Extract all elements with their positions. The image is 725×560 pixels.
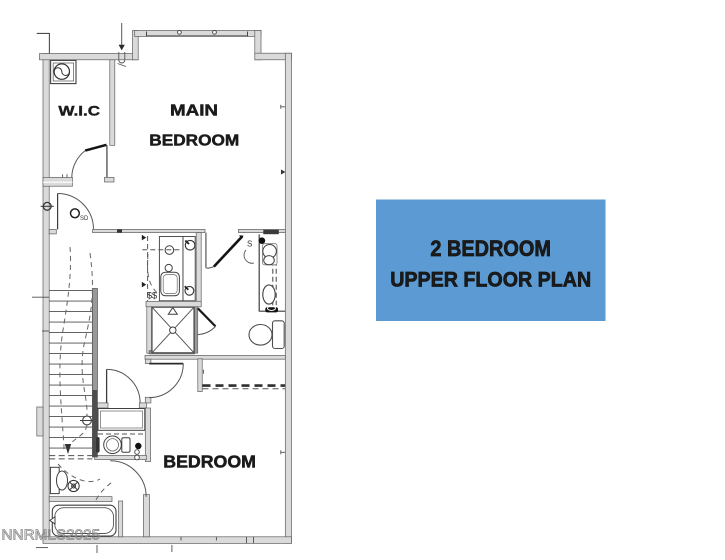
svg-text:MAIN: MAIN	[170, 103, 218, 120]
svg-text:UPPER FLOOR PLAN: UPPER FLOOR PLAN	[390, 267, 591, 291]
svg-text:BEDROOM: BEDROOM	[149, 133, 239, 150]
svg-text:2 BEDROOM: 2 BEDROOM	[430, 236, 551, 261]
svg-text:NNRMLS2025: NNRMLS2025	[2, 526, 101, 543]
svg-text:$$: $$	[147, 291, 157, 301]
svg-text:BEDROOM: BEDROOM	[163, 451, 256, 471]
svg-text:SD: SD	[80, 216, 89, 222]
svg-text:S: S	[247, 240, 252, 249]
svg-text:W.I.C: W.I.C	[58, 102, 100, 118]
